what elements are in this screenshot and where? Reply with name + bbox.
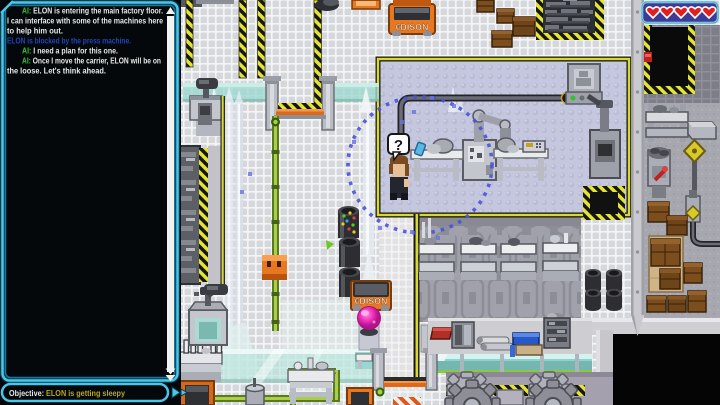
svg-text:Objective: ELON is getting sle: Objective: ELON is getting sleepy: [9, 389, 125, 398]
svg-text:AI: ELON is entering the main: AI: ELON is entering the main factory fl…: [22, 7, 163, 16]
svg-text:AI: Once I move the carrier, E: AI: Once I move the carrier, ELON will b…: [22, 57, 161, 66]
svg-text:AI: I need a plan for this one: AI: I need a plan for this one.: [22, 47, 118, 56]
svg-text:the loose. Let's think ahead.: the loose. Let's think ahead.: [7, 67, 106, 76]
svg-text:to help him out.: to help him out.: [7, 27, 63, 36]
svg-text:I can interface with some of t: I can interface with some of the machine…: [7, 17, 163, 26]
svg-text:ELON is blocked by the press m: ELON is blocked by the press machine.: [7, 37, 131, 46]
svg-text:€DISON: €DISON: [396, 22, 429, 32]
svg-text:€DISON: €DISON: [355, 296, 388, 306]
svg-text:?: ?: [394, 137, 403, 154]
